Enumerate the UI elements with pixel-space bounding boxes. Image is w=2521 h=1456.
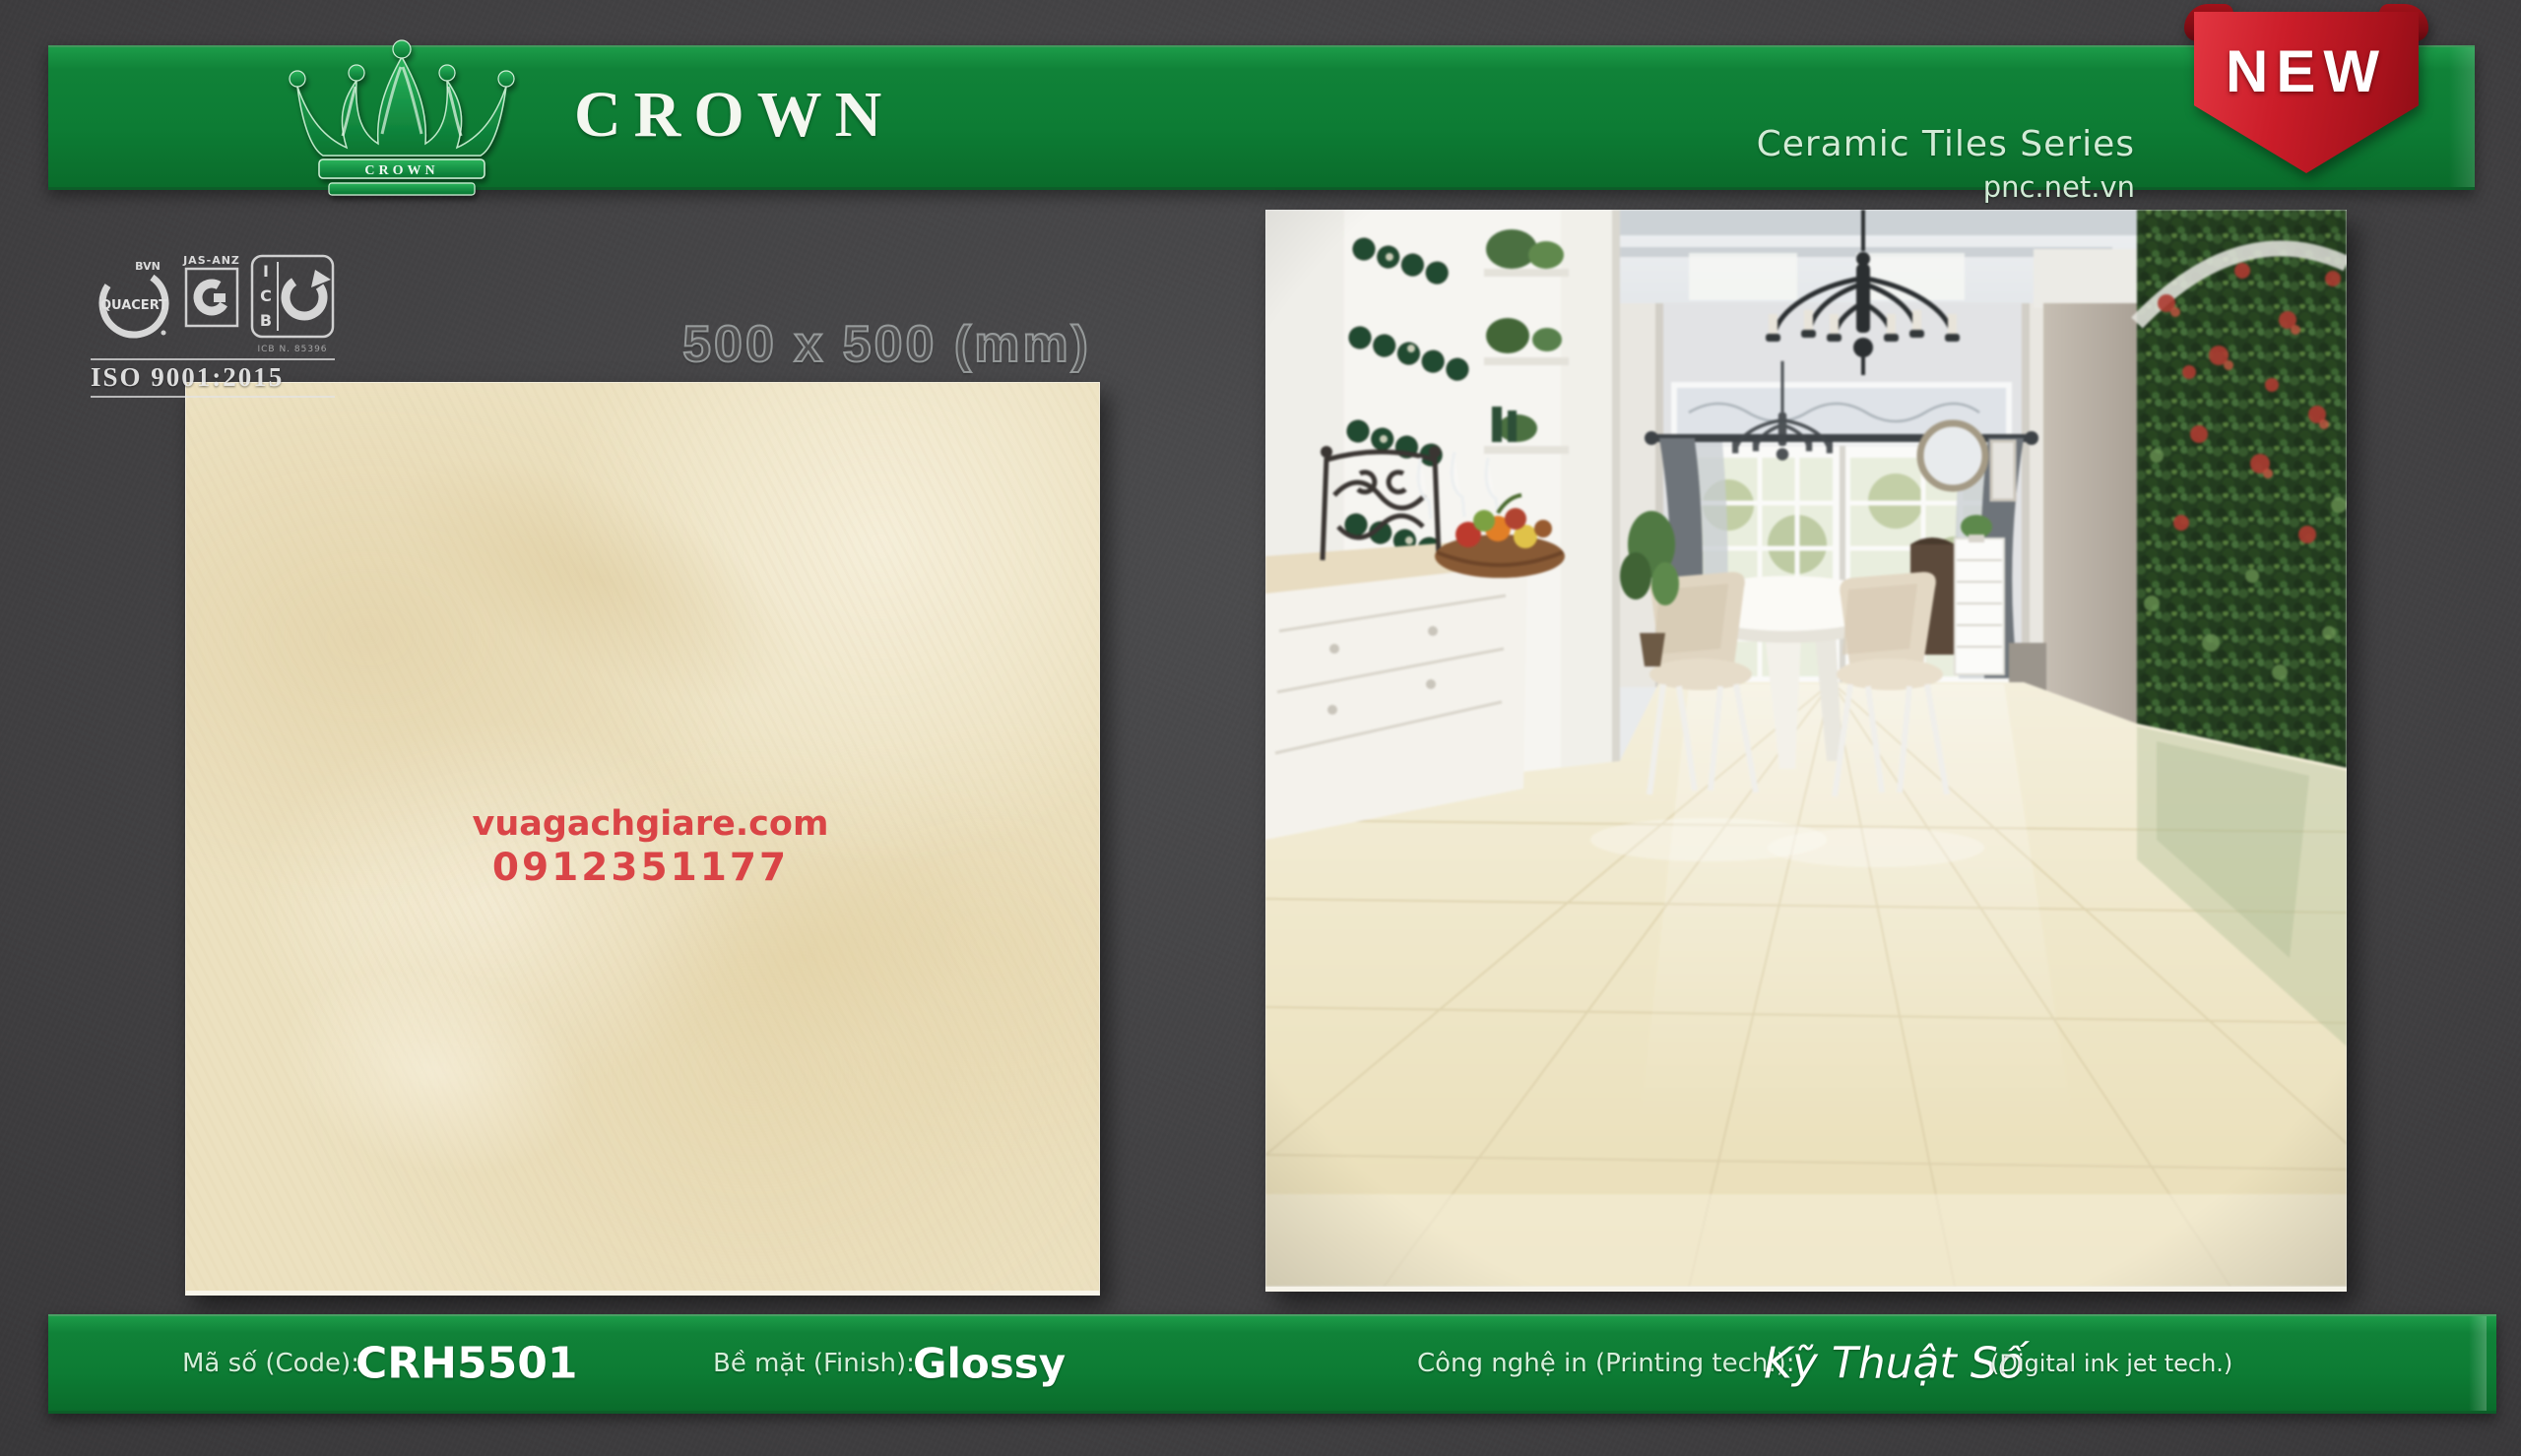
watermark-website: vuagachgiare.com xyxy=(194,804,1100,844)
tile-size-label: 500 x 500 (mm) xyxy=(682,315,1091,374)
svg-text:ICB: ICB xyxy=(257,262,276,336)
finish-value: Glossy xyxy=(913,1340,1066,1388)
code-value: CRH5501 xyxy=(356,1339,577,1389)
crown-logo-wordmark: CROWN xyxy=(364,163,438,178)
brand-title: CROWN xyxy=(574,45,894,185)
code-label: Mã số (Code): xyxy=(182,1349,359,1378)
printing-note: (Digital ink jet tech.) xyxy=(1990,1350,2232,1377)
footer-bar: Mã số (Code): CRH5501 Bề mặt (Finish): G… xyxy=(48,1314,2496,1414)
new-badge-label: NEW xyxy=(2194,37,2419,105)
quacert-logo: BVN QUACERT xyxy=(91,254,177,345)
printing-value: Kỹ Thuật Số xyxy=(1764,1339,2025,1389)
room-photo-illustration xyxy=(1265,210,2347,1287)
svg-text:QUACERT: QUACERT xyxy=(100,298,167,313)
website-text: pnc.net.vn xyxy=(1757,170,2135,204)
jas-anz-logo: JAS-ANZ xyxy=(183,254,240,332)
ribbon-body: NEW xyxy=(2194,12,2419,173)
svg-text:BVN: BVN xyxy=(135,260,161,273)
certifications-block: BVN QUACERT JAS-ANZ ICB xyxy=(91,254,347,398)
icb-number: ICB N. 85396 xyxy=(250,345,335,354)
iso-certification: ISO 9001:2015 xyxy=(91,358,335,398)
flyer-background: Ceramic Tiles Series pnc.net.vn CROWN xyxy=(0,0,2521,1456)
marble-vein xyxy=(269,382,931,821)
room-photo xyxy=(1265,210,2347,1292)
tile-sample-image: vuagachgiare.com 0912351177 xyxy=(185,382,1100,1296)
icb-logo: ICB ICB N. 85396 xyxy=(250,254,335,354)
header-right-block: Ceramic Tiles Series pnc.net.vn xyxy=(1757,124,2135,204)
printing-label: Công nghệ in (Printing tech.): xyxy=(1417,1349,1795,1378)
watermark-phone: 0912351177 xyxy=(185,846,1097,890)
new-ribbon: NEW xyxy=(2184,4,2428,177)
crown-logo-icon: CROWN xyxy=(284,26,520,205)
finish-label: Bề mặt (Finish): xyxy=(713,1349,915,1378)
series-title: Ceramic Tiles Series xyxy=(1757,124,2135,164)
